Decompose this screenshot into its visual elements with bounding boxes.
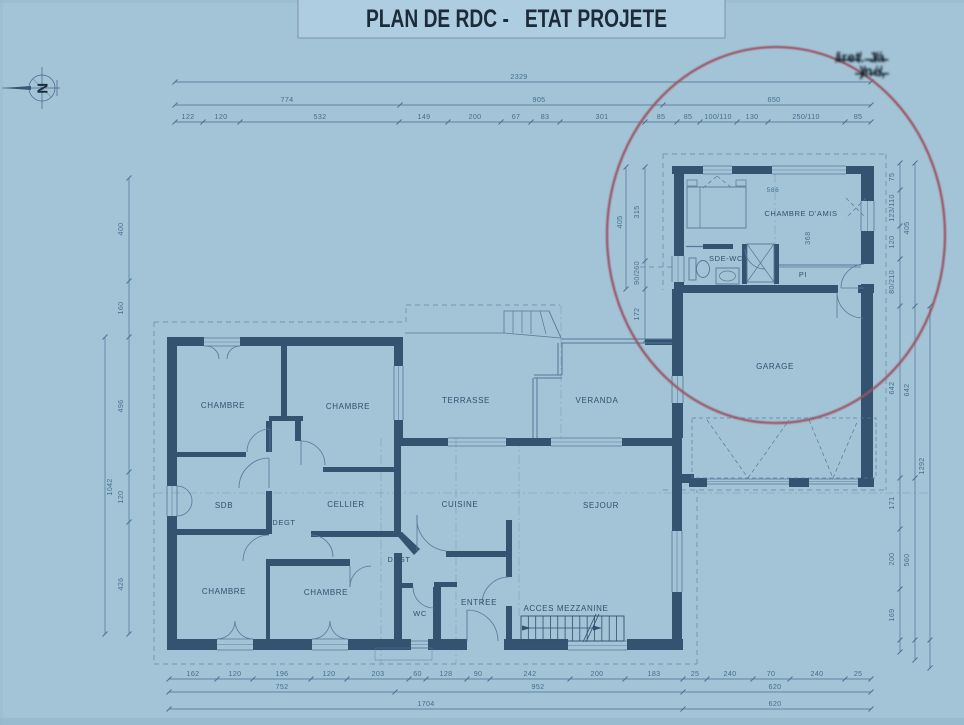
svg-text:200: 200 [887, 553, 896, 566]
svg-text:WC: WC [413, 609, 427, 618]
svg-text:DEGT: DEGT [387, 555, 410, 564]
svg-text:25: 25 [691, 669, 700, 678]
svg-text:196: 196 [276, 669, 289, 678]
svg-text:GARAGE: GARAGE [756, 362, 794, 371]
svg-text:952: 952 [532, 682, 545, 691]
svg-text:172: 172 [632, 308, 641, 321]
svg-text:PI: PI [799, 270, 807, 279]
svg-text:SDB: SDB [215, 501, 233, 510]
svg-text:83: 83 [541, 112, 550, 121]
svg-text:650: 650 [768, 95, 781, 104]
svg-text:120: 120 [229, 669, 242, 678]
svg-text:405: 405 [615, 216, 624, 229]
svg-text:85: 85 [684, 112, 693, 121]
svg-text:120: 120 [215, 112, 228, 121]
svg-text:120: 120 [887, 236, 896, 249]
svg-text:2329: 2329 [510, 72, 527, 81]
svg-text:905: 905 [533, 95, 546, 104]
svg-text:75: 75 [887, 173, 896, 182]
svg-text:169: 169 [887, 609, 896, 622]
svg-text:TERRASSE: TERRASSE [442, 396, 490, 405]
svg-text:160: 160 [116, 302, 125, 315]
svg-text:532: 532 [314, 112, 327, 121]
svg-text:1704: 1704 [417, 699, 434, 708]
svg-text:90: 90 [474, 669, 483, 678]
svg-text:620: 620 [769, 699, 782, 708]
svg-text:120: 120 [116, 491, 125, 504]
svg-text:200: 200 [591, 669, 604, 678]
svg-text:1042: 1042 [105, 478, 114, 495]
svg-text:200: 200 [469, 112, 482, 121]
svg-text:586: 586 [767, 187, 780, 194]
svg-text:70: 70 [767, 669, 776, 678]
svg-text:240: 240 [811, 669, 824, 678]
svg-text:CHAMBRE: CHAMBRE [326, 402, 370, 411]
svg-text:301: 301 [596, 112, 609, 121]
svg-text:149: 149 [418, 112, 431, 121]
svg-text:80/210: 80/210 [887, 270, 896, 294]
svg-text:CUISINE: CUISINE [442, 500, 479, 509]
svg-text:CHAMBRE: CHAMBRE [304, 588, 348, 597]
svg-text:642: 642 [887, 382, 896, 395]
svg-text:240: 240 [724, 669, 737, 678]
svg-text:426: 426 [116, 578, 125, 591]
svg-text:N: N [35, 82, 52, 93]
svg-text:162: 162 [187, 669, 200, 678]
svg-text:183: 183 [648, 669, 661, 678]
svg-text:CHAMBRE: CHAMBRE [202, 587, 246, 596]
svg-text:250/110: 250/110 [792, 112, 820, 121]
svg-text:560: 560 [902, 554, 911, 567]
svg-text:774: 774 [281, 95, 294, 104]
svg-text:PLAN DE RDC - ETAT PROJETE: PLAN DE RDC - ETAT PROJETE [366, 5, 667, 33]
svg-text:25: 25 [854, 669, 863, 678]
svg-text:67: 67 [512, 112, 521, 121]
svg-text:VERANDA: VERANDA [576, 396, 619, 405]
svg-text:496: 496 [116, 400, 125, 413]
svg-text:90/260: 90/260 [632, 261, 641, 285]
svg-text:CHAMBRE: CHAMBRE [201, 401, 245, 410]
svg-text:SDE-WC: SDE-WC [709, 254, 743, 263]
svg-text:CELLIER: CELLIER [327, 500, 365, 509]
svg-text:CHAMBRE D'AMIS: CHAMBRE D'AMIS [764, 209, 837, 218]
svg-text:203: 203 [372, 669, 385, 678]
svg-text:SEJOUR: SEJOUR [583, 501, 619, 510]
svg-text:128: 128 [440, 669, 453, 678]
svg-text:620: 620 [769, 682, 782, 691]
svg-text:̶)̸n̶ė̸,̶: ̶)̸n̶ė̸,̶ [855, 64, 889, 79]
svg-text:642: 642 [902, 384, 911, 397]
svg-text:̸i̶r̶e̶t̸. ̶J̸ȧ̶: ̸i̶r̶e̶t̸. ̶J̸ȧ̶ [835, 50, 889, 65]
svg-text:122: 122 [182, 112, 195, 121]
svg-text:130: 130 [746, 112, 759, 121]
svg-text:171: 171 [887, 497, 896, 510]
svg-text:1292: 1292 [917, 457, 926, 474]
svg-text:123/110: 123/110 [887, 194, 896, 222]
svg-text:ACCES MEZZANINE: ACCES MEZZANINE [523, 604, 608, 613]
svg-text:120: 120 [323, 669, 336, 678]
svg-text:315: 315 [632, 206, 641, 219]
svg-text:752: 752 [276, 682, 289, 691]
svg-text:60: 60 [413, 669, 422, 678]
svg-text:242: 242 [524, 669, 537, 678]
svg-text:368: 368 [805, 231, 812, 244]
svg-text:85: 85 [854, 112, 863, 121]
svg-text:ENTREE: ENTREE [461, 598, 497, 607]
svg-text:400: 400 [116, 223, 125, 236]
svg-text:85: 85 [657, 112, 666, 121]
svg-text:100/110: 100/110 [704, 112, 732, 121]
svg-text:DEGT: DEGT [272, 518, 295, 527]
svg-text:405: 405 [902, 222, 911, 235]
